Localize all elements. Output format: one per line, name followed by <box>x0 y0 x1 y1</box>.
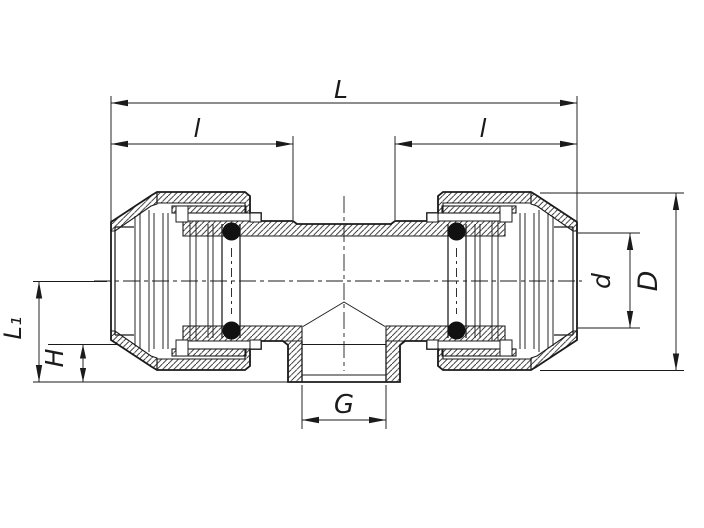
dim-label-bore-diameter: d <box>587 273 616 289</box>
left-retainer-top <box>176 206 188 222</box>
o-ring-right-top <box>448 223 466 241</box>
dim-label-branch-offset: H <box>40 348 69 367</box>
technical-drawing-canvas: L l l G d D L₁ H <box>0 0 704 528</box>
left-junction-ring-top <box>250 213 261 222</box>
left-retainer-bottom <box>176 340 188 356</box>
right-retainer-bottom <box>500 340 512 356</box>
right-retainer-top <box>500 206 512 222</box>
o-ring-right-bottom <box>448 322 466 340</box>
branch-wall-right-section <box>386 341 405 382</box>
dim-label-left-engagement: l <box>194 114 201 143</box>
right-junction-ring-bottom <box>427 340 438 349</box>
dim-label-overall-length: L <box>334 75 348 104</box>
dim-label-outside-diameter: D <box>633 271 664 292</box>
left-junction-ring-bottom <box>250 340 261 349</box>
body-bottom-wall-right-section <box>386 326 505 341</box>
branch-wall-left-section <box>283 341 302 382</box>
dim-label-right-engagement: l <box>480 114 487 143</box>
o-ring-left-bottom <box>223 322 241 340</box>
compression-tee-fitting-drawing: L l l G d D L₁ H <box>0 0 704 528</box>
right-junction-ring-top <box>427 213 438 222</box>
dim-label-branch-thread: G <box>334 390 354 420</box>
dim-label-center-to-branch: L₁ <box>0 317 27 340</box>
o-ring-left-top <box>223 223 241 241</box>
body-bottom-wall-left-section <box>183 326 302 341</box>
